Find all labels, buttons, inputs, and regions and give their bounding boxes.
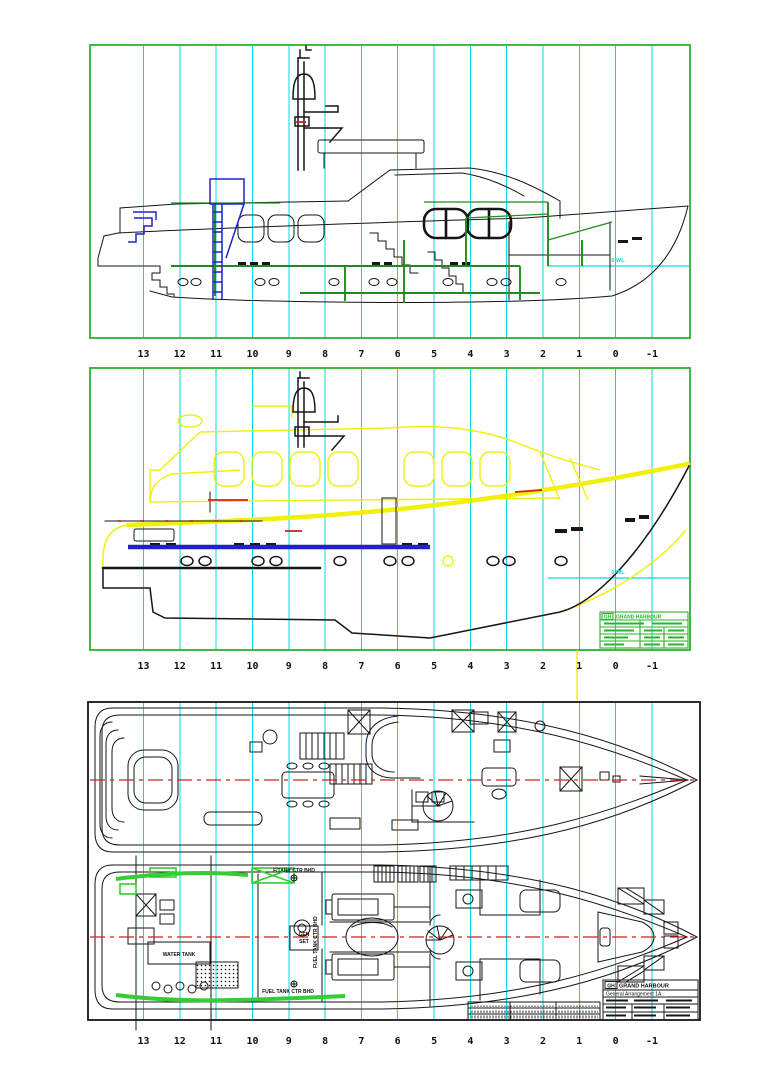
mast-assembly [293,46,342,170]
station-label: 6 [395,661,401,672]
station-label: 5 [431,1036,437,1047]
title-block-drawing-title: General Arrangement 1A [606,992,662,998]
station-ruler-bottom: 131211109876543210-1 [137,1036,658,1047]
station-label: 12 [174,661,186,672]
station-label: 7 [358,1036,364,1047]
station-label: 5 [431,661,437,672]
station-label: 8 [322,1036,328,1047]
title-block-logo: GH [607,984,615,990]
station-label: 11 [210,1036,222,1047]
station-label: 2 [540,661,546,672]
station-label: 9 [286,1036,292,1047]
waterline-label: 0.WL [611,258,625,264]
station-label: 12 [174,1036,186,1047]
station-ruler-middle: 131211109876543210-1 [137,661,658,672]
station-label: 10 [246,1036,258,1047]
station-label: 13 [137,349,149,360]
title-block-company: GRAND HARBOUR [616,615,662,621]
station-ruler-top: 131211109876543210-1 [137,349,658,360]
drawing-sheet: 0.WL 131211109876543210-1 [0,0,763,1080]
waterline-label: 0.WL [611,570,625,576]
station-label: -1 [646,349,658,360]
station-label: 4 [467,349,473,360]
title-block-lines-view: GH GRAND HARBOUR [600,612,688,648]
station-label: 8 [322,349,328,360]
station-label: 1 [576,1036,582,1047]
station-label: 3 [504,1036,510,1047]
blue-stairs-ladder [128,179,244,300]
structural-profile-view: 0.WL [90,45,690,338]
fwd-tank-bulkhead-label: F/TANK CTR BHD [273,868,315,874]
station-label: 11 [210,349,222,360]
revision-strip [468,1002,600,1020]
portholes [181,557,567,566]
station-label: 0 [613,349,619,360]
station-label: 13 [137,1036,149,1047]
station-label: 6 [395,349,401,360]
station-label: 10 [246,349,258,360]
title-block-fill-bars [606,1000,692,1017]
station-label: 9 [286,349,292,360]
deck-plans-view: F/TANK CTR BHD FUEL TANK CTR BHD FUEL TA… [88,702,700,1030]
station-label: 3 [504,661,510,672]
mast-assembly [293,372,344,450]
station-label: 1 [576,661,582,672]
hull-profile-linework [98,140,688,303]
station-label: 13 [137,661,149,672]
station-label: 0 [613,1036,619,1047]
lines-profile-view: GH GRAND HARBOUR 0.WL [90,368,690,700]
datum-symbol-bottom [291,981,297,987]
window-frames-bold [424,209,511,238]
reference-lines [136,856,211,1030]
station-label: 6 [395,1036,401,1047]
station-label: 10 [246,661,258,672]
station-label: 9 [286,661,292,672]
water-tank-label: WATER TANK [163,952,196,958]
station-label: 3 [504,349,510,360]
station-label: 2 [540,1036,546,1047]
datum-symbol-top [291,875,297,881]
station-label: -1 [646,1036,658,1047]
title-block-deck-plans: GH GRAND HARBOUR General Arrangement 1A [603,980,698,1020]
fuel-tank-bulkhead-vertical-label: FUEL TANK CTR BHD [313,916,319,968]
station-label: 0 [613,661,619,672]
station-label: 7 [358,661,364,672]
gen-set-label-line1: GEN [299,932,310,938]
fuel-tank-bulkhead-label: FUEL TANK CTR BHD [262,989,314,995]
station-label: 5 [431,349,437,360]
title-block-logo: GH [604,615,612,621]
gen-set-label-line2: SET [299,939,309,945]
station-label: -1 [646,661,658,672]
station-grid [144,45,653,338]
green-structure-lines [171,202,612,303]
station-label: 2 [540,349,546,360]
station-label: 12 [174,349,186,360]
cad-drawing: 0.WL 131211109876543210-1 [0,0,763,1080]
station-label: 4 [467,661,473,672]
title-block-company: GRAND HARBOUR [619,984,669,990]
station-label: 7 [358,349,364,360]
station-label: 1 [576,349,582,360]
station-label: 8 [322,661,328,672]
station-label: 4 [467,1036,473,1047]
station-label: 11 [210,661,222,672]
